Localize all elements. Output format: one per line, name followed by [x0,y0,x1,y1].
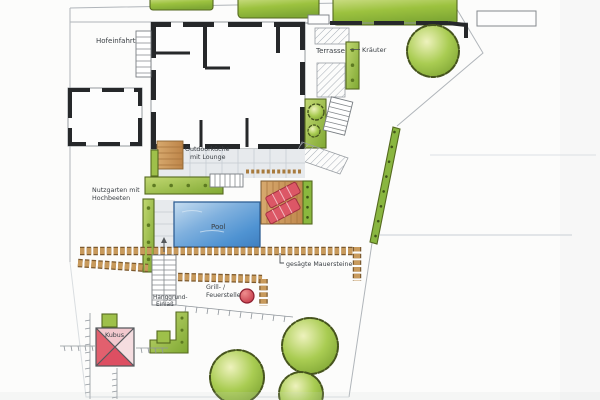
label-kraeuter: Kräuter [362,46,387,54]
herb-bed [346,42,360,89]
label-hang-2: Einlaß [156,302,174,308]
label-mauersteine: gesägte Mauersteine [286,261,352,268]
label-grill-1: Grill- / [206,284,226,291]
label-pool: Pool [211,223,226,231]
plan-drawing: Hofeinfahrt Terrasse Kräuter Outdoorküch… [0,0,600,400]
label-nutzgarten-1: Nutzgarten mit [92,187,140,194]
garden-plan-scan: Hofeinfahrt Terrasse Kräuter Outdoorküch… [0,0,600,400]
label-grill-2: Feuerstelle [206,292,241,299]
label-outdoorkueche-1: Outdoorküche [185,146,230,153]
garage-building [68,88,142,146]
label-terrasse: Terrasse [315,47,345,55]
sun-lounger-deck [261,181,312,224]
label-hang-1: Hanggrund- [153,295,187,301]
tree [210,350,264,400]
tree-top-right [407,25,459,77]
label-hofeinfahrt: Hofeinfahrt [96,37,136,45]
label-outdoorkueche-2: mit Lounge [190,154,226,161]
label-kubus: Kubus [105,332,124,339]
label-nutzgarten-2: Hochbeeten [92,195,130,202]
main-house [151,22,305,149]
tree [282,318,338,374]
west-wall-stair [136,31,151,77]
house-side-bed [305,99,326,148]
fire-pit [240,289,254,303]
